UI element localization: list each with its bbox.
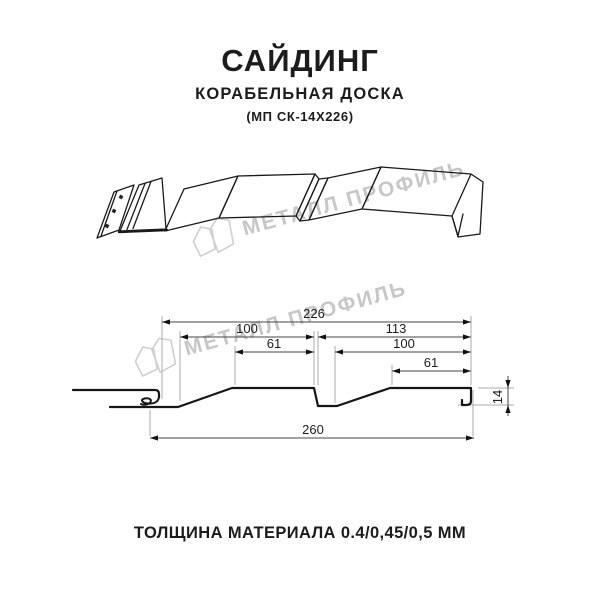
dim-profile-height: 14 [490,390,505,404]
dim-working-width: 226 [303,306,325,321]
profile-outline [73,388,471,407]
lock-seam [141,396,159,405]
top-face-1 [219,174,315,218]
dim-overall-width: 260 [302,422,324,437]
top-face-2 [362,167,471,216]
dim-pitch-left: 100 [236,321,258,336]
cross-section-drawing: 226 100 113 61 100 61 260 14 [55,295,530,450]
dim-flat-right-pitch: 100 [393,336,415,351]
page-title: САЙДИНГ [0,44,600,78]
dimension-arrows [150,319,511,440]
dimension-lines [150,322,508,438]
iso-profile-drawing [75,158,505,283]
extension-lines [150,316,514,436]
dim-flat-right: 61 [424,355,438,370]
header: САЙДИНГ КОРАБЕЛЬНАЯ ДОСКА (МП СК-14Х226) [0,44,600,124]
model-code: (МП СК-14Х226) [0,109,600,124]
catalog-product-card: САЙДИНГ КОРАБЕЛЬНАЯ ДОСКА (МП СК-14Х226)… [0,0,600,600]
slope-face-1 [165,176,238,231]
slope-face-2 [309,167,381,220]
dim-flat-left: 61 [267,336,281,351]
product-subtitle: КОРАБЕЛЬНАЯ ДОСКА [0,85,600,104]
dim-pitch-right: 113 [386,321,407,336]
thickness-note: ТОЛЩИНА МАТЕРИАЛА 0.4/0,45/0,5 ММ [0,524,600,543]
